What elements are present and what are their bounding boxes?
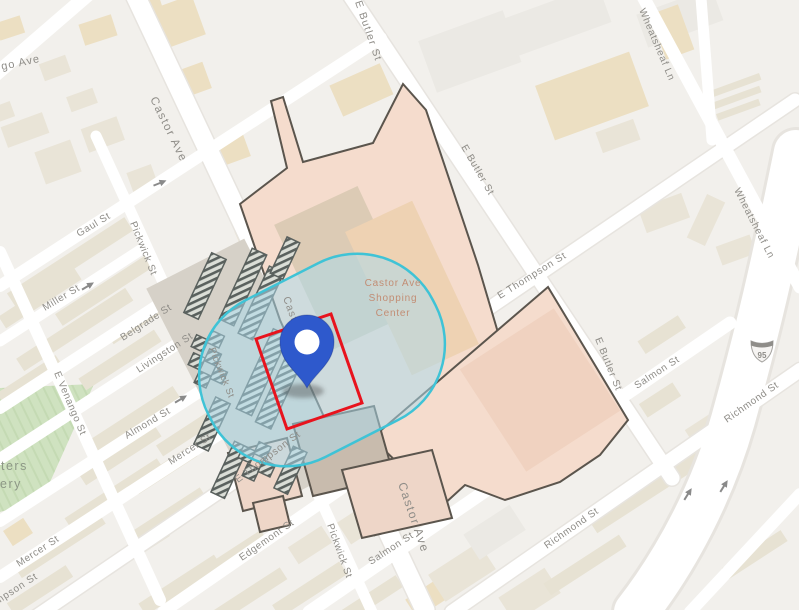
svg-text:ery: ery — [0, 477, 22, 491]
pin-shadow — [282, 384, 324, 398]
pin-inner-circle — [295, 330, 320, 355]
svg-text:ters: ters — [1, 459, 28, 473]
svg-text:95: 95 — [758, 351, 767, 360]
svg-text:Shopping: Shopping — [369, 293, 418, 304]
svg-text:Castor Ave: Castor Ave — [365, 278, 422, 289]
svg-text:Center: Center — [376, 308, 411, 319]
map-canvas[interactable]: go AveCastor AveCastor AveCastor AveE Bu… — [0, 0, 799, 610]
